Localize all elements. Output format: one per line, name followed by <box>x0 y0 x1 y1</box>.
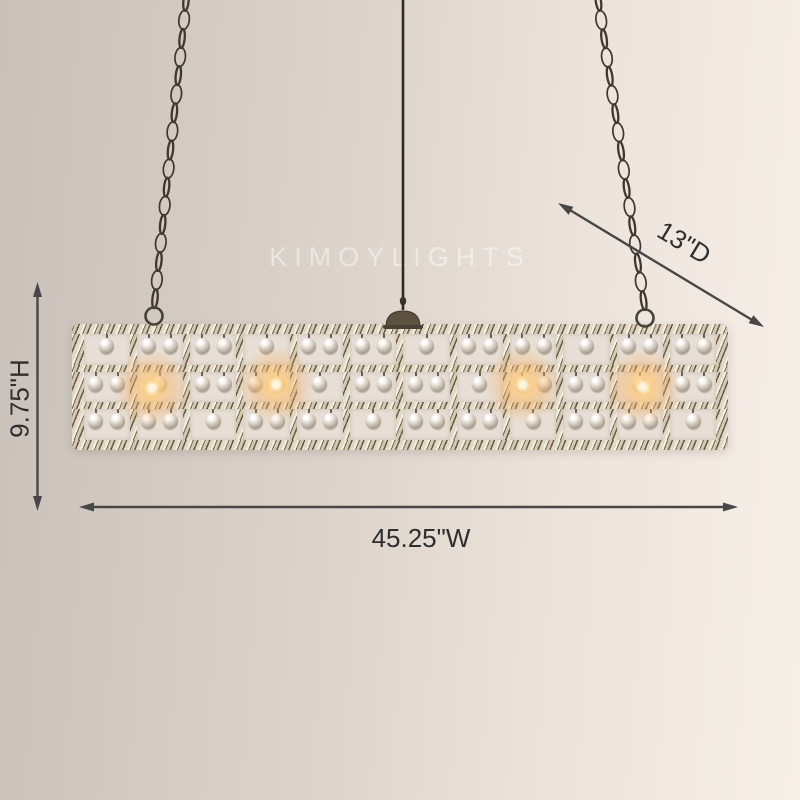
chain-left <box>151 0 191 308</box>
chain-link <box>606 66 614 86</box>
chain-link <box>166 121 178 141</box>
chain-link <box>162 159 174 179</box>
attachment-ring-left <box>146 308 163 325</box>
chain-link <box>182 0 189 11</box>
depth-dimension-arrow <box>558 203 764 327</box>
hanging-rod <box>400 0 406 310</box>
chain-link <box>175 66 182 85</box>
chain-link <box>600 29 608 49</box>
width-dimension-label: 45.25"W <box>372 523 471 554</box>
chain-link <box>167 140 174 159</box>
chain-link <box>171 103 178 122</box>
chain-link <box>623 197 636 217</box>
chain-link <box>617 160 630 180</box>
chain-link <box>155 252 162 271</box>
attachment-ring-right <box>637 310 654 327</box>
height-dimension-label: 9.75"H <box>5 339 36 459</box>
chain-link <box>611 104 619 124</box>
chain-link <box>634 253 642 273</box>
chain-link <box>612 122 625 142</box>
width-dimension-arrow <box>79 503 738 512</box>
chain-link <box>163 177 170 196</box>
chain-link <box>159 215 166 234</box>
chain-link <box>170 84 182 104</box>
chain-link <box>623 179 631 199</box>
chain-link <box>640 291 648 311</box>
chain-link <box>174 47 186 67</box>
chain-link <box>151 289 158 308</box>
scene-overlay <box>0 0 800 800</box>
chain-link <box>606 85 619 105</box>
chain-right <box>594 0 647 310</box>
chain-link <box>155 233 167 253</box>
chain-link <box>617 141 625 161</box>
product-photo: KIMOYLIGHTS <box>0 0 800 800</box>
chain-link <box>600 47 613 67</box>
chain-link <box>178 10 190 30</box>
chain-link <box>628 216 636 236</box>
chain-link <box>151 270 163 290</box>
chain-link <box>634 272 647 292</box>
chain-link <box>594 0 602 11</box>
canopy <box>383 311 423 329</box>
chain-link <box>595 10 608 30</box>
chain-link <box>159 196 171 216</box>
chain-link <box>179 29 186 48</box>
